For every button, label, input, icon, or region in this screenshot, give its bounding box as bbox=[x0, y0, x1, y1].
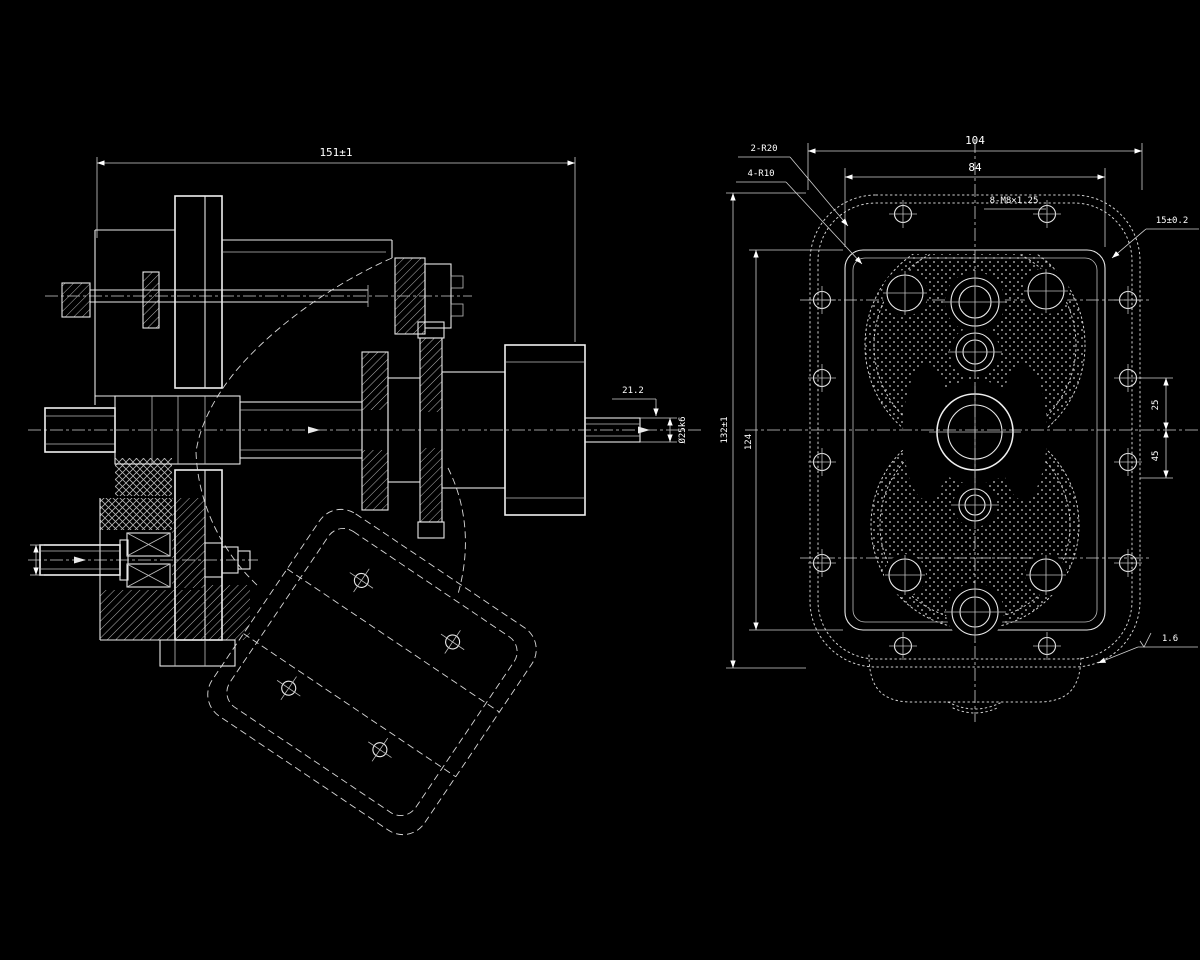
dimension-keyway: 21.2 bbox=[612, 386, 656, 416]
dim-overall-height-label: 132±1 bbox=[720, 416, 730, 443]
bolt-hole bbox=[808, 549, 836, 577]
stud-detail bbox=[62, 272, 368, 328]
roughness-icon bbox=[1140, 633, 1151, 647]
bolt-hole bbox=[808, 364, 836, 392]
dim-overall-length-label: 151±1 bbox=[319, 146, 352, 159]
bolt-hole bbox=[1114, 364, 1142, 392]
dim-overall-width-label: 104 bbox=[965, 134, 985, 147]
technical-drawing: 151±1 21.2 Ø25k6 bbox=[0, 0, 1200, 960]
centerline-arrow-icon bbox=[74, 557, 86, 564]
callout-thread: 8-M8×1.25 bbox=[984, 196, 1046, 209]
drawing-canvas: 151±1 21.2 Ø25k6 bbox=[0, 0, 1200, 960]
dimension-upper-offset: 25 bbox=[1140, 378, 1173, 430]
dowel-boss bbox=[882, 270, 928, 316]
dimension-overall-height: 132±1 bbox=[720, 193, 806, 668]
callout-corner-thickness-label: 15±0.2 bbox=[1156, 216, 1189, 226]
flange-hole bbox=[269, 669, 308, 708]
left-view-section: 151±1 21.2 Ø25k6 bbox=[28, 146, 702, 845]
dimension-bolt-span-height: 124 bbox=[744, 250, 843, 630]
bolt-hole bbox=[1033, 632, 1061, 660]
callout-surface-finish-label: 1.6 bbox=[1162, 634, 1178, 644]
dim-bolt-span-width-label: 84 bbox=[968, 161, 982, 174]
bolt-hole bbox=[889, 200, 917, 228]
callout-fillet-radius-label: 4-R10 bbox=[747, 169, 774, 179]
bolt-hole bbox=[1114, 549, 1142, 577]
bolt-hole bbox=[808, 286, 836, 314]
callout-surface-finish: 1.6 bbox=[1098, 633, 1198, 663]
right-view-face: 104 84 132±1 124 25 bbox=[720, 134, 1200, 722]
dim-keyway-label: 21.2 bbox=[622, 386, 644, 396]
callout-thread-label: 8-M8×1.25 bbox=[990, 196, 1039, 206]
dowel-boss bbox=[1025, 554, 1067, 596]
dim-lower-offset-label: 45 bbox=[1151, 451, 1161, 462]
dimension-overall-length: 151±1 bbox=[97, 146, 575, 342]
flange-hole bbox=[360, 730, 399, 769]
dowel-boss bbox=[884, 554, 926, 596]
dim-bolt-span-height-label: 124 bbox=[744, 434, 754, 450]
flange-hole bbox=[433, 622, 472, 661]
bolt-hole bbox=[1114, 448, 1142, 476]
bolt-hole bbox=[1114, 286, 1142, 314]
bolt-hole bbox=[808, 448, 836, 476]
dim-shaft-dia-label: Ø25k6 bbox=[677, 416, 688, 443]
centerline-arrow-icon bbox=[308, 427, 320, 434]
callout-corner-radius-label: 2-R20 bbox=[750, 144, 777, 154]
dimension-lower-offset: 45 bbox=[1140, 430, 1173, 478]
callout-corner-thickness: 15±0.2 bbox=[1112, 216, 1199, 258]
section-hatching bbox=[62, 258, 442, 640]
bolt-hole bbox=[889, 632, 917, 660]
dim-upper-offset-label: 25 bbox=[1151, 400, 1161, 411]
dowel-boss bbox=[1023, 268, 1069, 314]
flange-hole bbox=[342, 561, 381, 600]
callout-corner-radius: 2-R20 bbox=[738, 144, 848, 226]
